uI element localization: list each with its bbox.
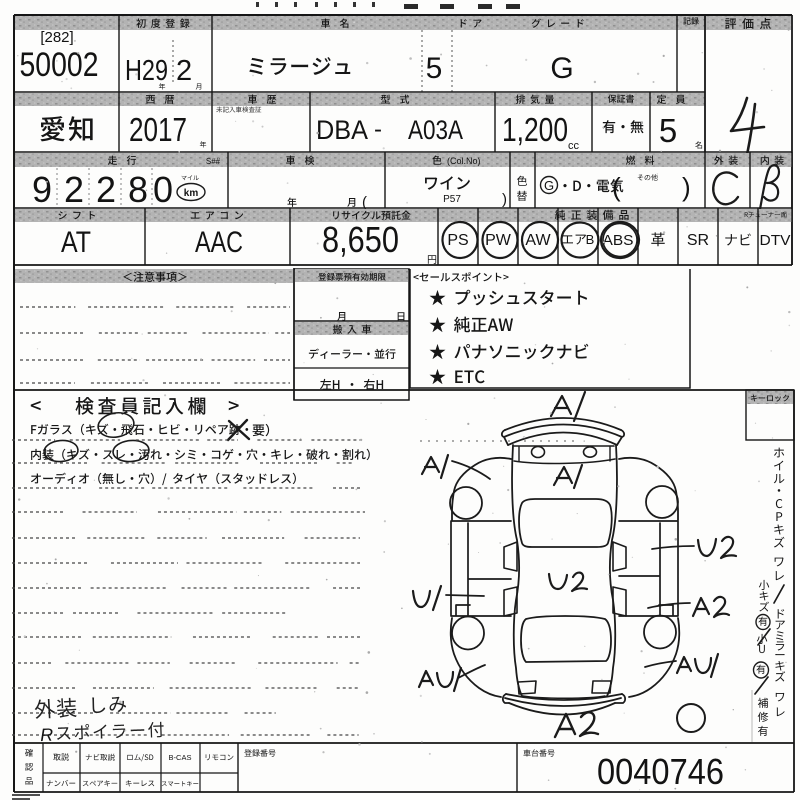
svg-text:0: 0 (153, 169, 173, 210)
svg-text:5: 5 (426, 52, 443, 85)
svg-text:2: 2 (64, 169, 84, 210)
svg-text:cc: cc (568, 140, 580, 152)
svg-text:1,200: 1,200 (502, 111, 568, 148)
svg-text:): ) (682, 172, 691, 202)
svg-text:SR: SR (687, 232, 709, 249)
svg-text:PS: PS (447, 232, 468, 249)
svg-text:5: 5 (659, 112, 677, 149)
svg-text:B-CAS: B-CAS (169, 753, 192, 762)
svg-text:km: km (184, 188, 199, 199)
svg-text:PW: PW (485, 232, 512, 249)
svg-text:2: 2 (96, 169, 116, 210)
svg-text:9: 9 (32, 169, 52, 210)
svg-text:(Col.No): (Col.No) (447, 156, 481, 166)
svg-text:H29: H29 (125, 55, 168, 87)
svg-text:(: ( (612, 172, 621, 202)
svg-text:A03A: A03A (408, 115, 463, 145)
svg-text:8: 8 (128, 169, 148, 210)
svg-text:2: 2 (176, 55, 192, 87)
svg-text:P57: P57 (443, 194, 461, 205)
svg-text:B: B (586, 232, 595, 247)
svg-text:DBA: DBA (316, 115, 368, 145)
svg-text:[282]: [282] (40, 29, 73, 46)
svg-text:0040746: 0040746 (597, 751, 724, 792)
svg-text:): ) (502, 191, 507, 208)
svg-text:-: - (374, 116, 382, 143)
svg-text:G: G (544, 178, 554, 193)
svg-text:2017: 2017 (129, 111, 187, 148)
svg-text:R: R (40, 725, 54, 745)
svg-text:AT: AT (61, 226, 91, 259)
svg-text:DTV: DTV (760, 232, 791, 249)
svg-text:AW: AW (525, 232, 551, 249)
svg-text:50002: 50002 (20, 46, 99, 84)
svg-text:ABS: ABS (603, 232, 634, 249)
svg-text:G: G (550, 52, 573, 85)
svg-text:S##: S## (206, 157, 221, 166)
svg-text:AAC: AAC (195, 226, 243, 259)
svg-text:8,650: 8,650 (322, 219, 399, 260)
